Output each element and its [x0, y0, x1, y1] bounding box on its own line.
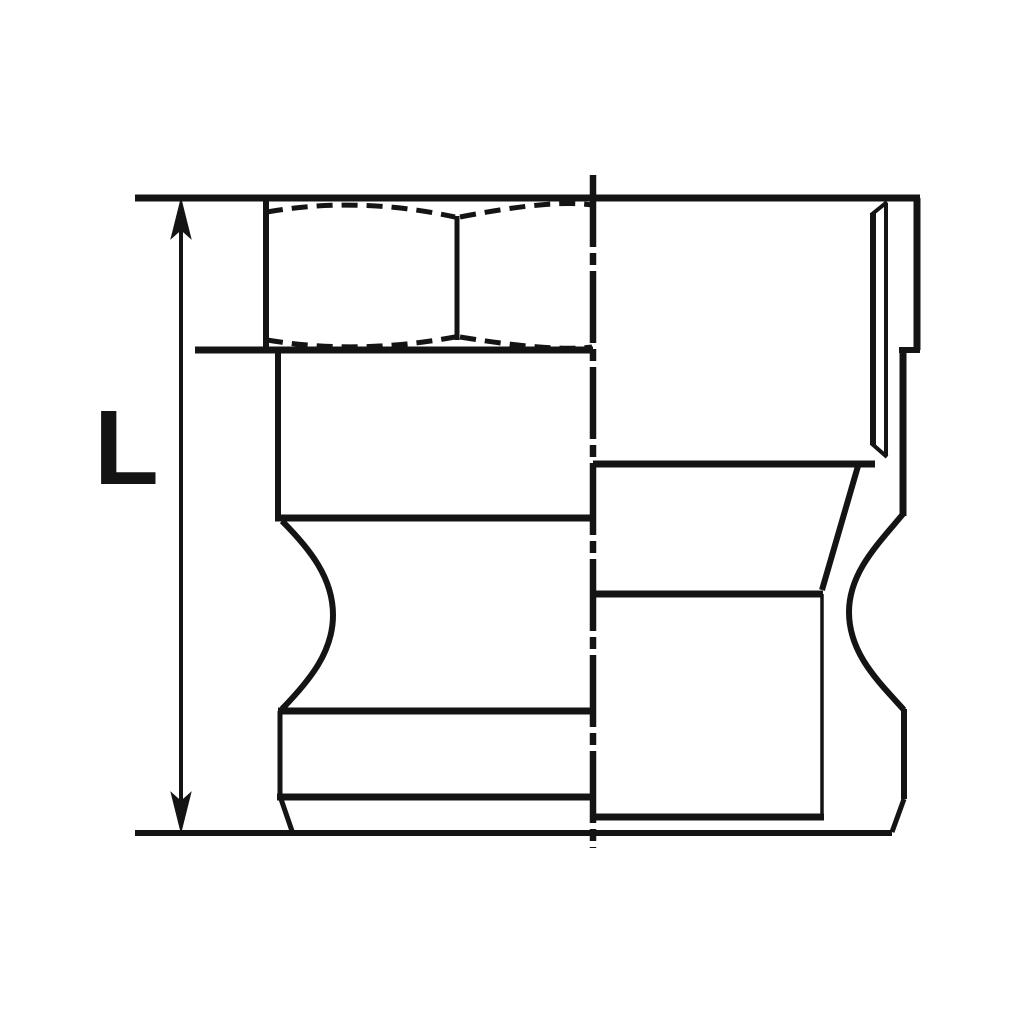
right-tip-chamfer: [892, 799, 904, 832]
dimension-label: L: [94, 395, 159, 501]
left-cam-groove: [282, 521, 333, 709]
drawing-canvas: [0, 0, 1024, 1024]
right-cam-groove: [849, 514, 904, 710]
right-taper-diagonal: [822, 466, 858, 590]
technical-drawing-page: L: [0, 0, 1024, 1024]
left-tip-chamfer: [281, 799, 292, 831]
hex-chamfer-arc-bottom-left: [267, 337, 455, 347]
hex-chamfer-arc-top-right: [460, 204, 592, 218]
hex-chamfer-arc-top-left: [267, 205, 455, 217]
